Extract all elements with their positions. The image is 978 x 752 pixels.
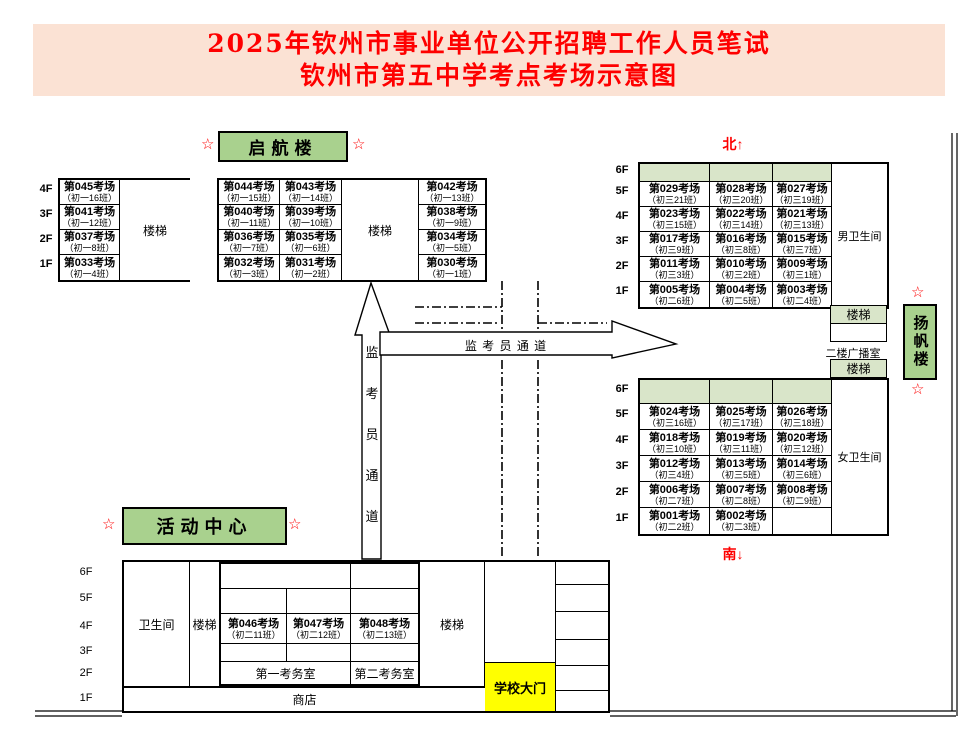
room-cell: 第046考场（初二11班） (221, 614, 287, 644)
room-number: 第007考场 (715, 484, 766, 496)
room-number: 第027考场 (776, 183, 827, 195)
stairs-cell: 楼梯 (120, 180, 190, 280)
room-cell: 第024考场（初三16班） (640, 404, 710, 430)
room-class: （初二7班） (649, 496, 699, 506)
stairs-cell: 楼梯 (190, 562, 219, 686)
room-class: （初三2班） (716, 270, 766, 280)
room-number: 第045考场 (64, 181, 115, 193)
room-class: （初一2班） (285, 269, 335, 279)
room-cell: 第027考场（初三19班） (773, 182, 832, 207)
room-class: （初三9班） (649, 245, 699, 255)
room-cell: 第006考场（初二7班） (640, 482, 710, 508)
empty-cell (351, 644, 418, 662)
room-number: 第030考场 (426, 257, 477, 269)
restroom-cell: 男卫生间 (832, 164, 887, 307)
activity-middle-block: 第046考场（初二11班）第047考场（初二12班）第048考场（初二13班）第… (219, 562, 420, 686)
floor-label: 1F (74, 692, 98, 704)
room-number: 第026考场 (776, 406, 827, 418)
yangfan-building-label: 扬帆楼 (903, 304, 937, 380)
room-cell: 第037考场（初一8班） (60, 230, 120, 255)
room-class: （初二5班） (716, 296, 766, 306)
room-number: 第024考场 (649, 406, 700, 418)
room-class: （初二2班） (649, 522, 699, 532)
room-cell: 第001考场（初二2班） (640, 508, 710, 534)
room-class: （初三18班） (774, 418, 829, 428)
room-cell: 第026考场（初三18班） (773, 404, 832, 430)
room-number: 第034考场 (426, 231, 477, 243)
road-dashdot (415, 281, 607, 558)
room-class: （初二8班） (716, 496, 766, 506)
room-number: 第001考场 (649, 510, 700, 522)
room-number: 第032考场 (223, 257, 274, 269)
star-icon: ☆ (352, 137, 365, 152)
empty-cell (351, 589, 418, 614)
room-cell: 第034考场（初一5班） (419, 230, 485, 255)
room-class: （初三15班） (647, 220, 702, 230)
room-class: （初一6班） (285, 243, 335, 253)
passage-char: 员 (362, 414, 382, 455)
room-cell: 第011考场（初三3班） (640, 257, 710, 282)
empty-cell (710, 164, 773, 182)
passage-char: 监 (362, 332, 382, 373)
room-class: （初二4班） (777, 296, 827, 306)
room-class: （初一3班） (224, 269, 274, 279)
empty-cell (556, 562, 608, 585)
room-number: 第029考场 (649, 183, 700, 195)
room-cell: 第018考场（初三10班） (640, 430, 710, 456)
room-cell: 第004考场（初二5班） (710, 282, 773, 307)
room-class: （初三11班） (714, 444, 768, 454)
room-cell: 第033考场（初一4班） (60, 255, 120, 280)
room-number: 第021考场 (776, 208, 827, 220)
floor-label: 3F (610, 460, 634, 472)
floor-label: 2F (36, 233, 56, 245)
shop-cell: 商店 (124, 686, 485, 711)
room-number: 第044考场 (223, 181, 274, 193)
room-number: 第018考场 (649, 432, 700, 444)
room-cell: 第022考场（初三14班） (710, 207, 773, 232)
floor-label: 3F (74, 645, 98, 657)
floor-label: 1F (610, 285, 634, 297)
room-number: 第039考场 (285, 206, 336, 218)
room-cell: 第040考场（初一11班） (219, 205, 280, 230)
star-icon: ☆ (911, 382, 924, 397)
room-number: 第048考场 (359, 618, 410, 630)
room-class: （初一8班） (64, 243, 114, 253)
stairs-cell: 楼梯 (342, 180, 419, 280)
room-class: （初三17班） (713, 418, 768, 428)
qihang-middle-block: 第044考场（初一15班）第040考场（初一11班）第036考场（初一7班）第0… (217, 178, 487, 282)
room-class: （初三19班） (774, 195, 829, 205)
room-cell: 第008考场（初二9班） (773, 482, 832, 508)
floor-label: 5F (610, 185, 634, 197)
room-class: （初三5班） (716, 470, 766, 480)
exam-office-1-cell: 第一考务室 (221, 662, 351, 684)
room-cell: 第015考场（初三7班） (773, 232, 832, 257)
room-class: （初一13班） (424, 193, 479, 203)
floor-label: 4F (610, 434, 634, 446)
room-cell: 第036考场（初一7班） (219, 230, 280, 255)
room-class: （初三4班） (649, 470, 699, 480)
floor-label: 6F (610, 383, 634, 395)
room-number: 第041考场 (64, 206, 115, 218)
room-cell: 第003考场（初二4班） (773, 282, 832, 307)
qihang-left-block: 第045考场（初一16班）第041考场（初一12班）第037考场（初一8班）第0… (58, 178, 190, 282)
room-number: 第013考场 (715, 458, 766, 470)
room-cell: 第012考场（初三4班） (640, 456, 710, 482)
room-class: （初一7班） (224, 243, 274, 253)
floor-label: 3F (36, 208, 56, 220)
page-title: 2025年钦州市事业单位公开招聘工作人员笔试 钦州市第五中学考点考场示意图 (33, 24, 945, 96)
yangfan-north-table: 第029考场（初三21班）第028考场（初三20班）第027考场（初三19班）第… (638, 162, 889, 309)
room-class: （初一1班） (427, 269, 477, 279)
room-cell: 第032考场（初一3班） (219, 255, 280, 280)
room-cell: 第043考场（初一14班） (280, 180, 342, 205)
empty-cell (287, 589, 351, 614)
room-cell: 第035考场（初一6班） (280, 230, 342, 255)
room-number: 第003考场 (776, 284, 827, 296)
room-cell: 第031考场（初一2班） (280, 255, 342, 280)
empty-cell (773, 164, 832, 182)
room-number: 第022考场 (715, 208, 766, 220)
star-icon: ☆ (201, 137, 214, 152)
room-number: 第019考场 (715, 432, 766, 444)
room-cell: 第002考场（初二3班） (710, 508, 773, 534)
empty-cell (221, 644, 287, 662)
stairs-cell: 楼梯 (830, 359, 887, 378)
stairs-cell: 楼梯 (830, 305, 887, 324)
room-number: 第016考场 (715, 233, 766, 245)
room-number: 第020考场 (776, 432, 827, 444)
passage-char: 道 (362, 496, 382, 537)
empty-cell (556, 585, 608, 612)
empty-cell (830, 323, 887, 342)
room-cell: 第047考场（初二12班） (287, 614, 351, 644)
room-class: （初三16班） (647, 418, 702, 428)
room-class: （初三7班） (777, 245, 827, 255)
restroom-cell: 女卫生间 (832, 380, 887, 534)
room-number: 第023考场 (649, 208, 700, 220)
floor-label: 1F (610, 512, 634, 524)
compass-north: 北↑ (698, 134, 768, 154)
restroom-cell: 卫生间 (124, 562, 190, 686)
floor-label: 4F (36, 183, 56, 195)
yangfan-building-name: 扬帆楼 (910, 315, 931, 369)
floor-label: 2F (610, 486, 634, 498)
activity-center-building: 卫生间 楼梯 第046考场（初二11班）第047考场（初二12班）第048考场（… (122, 560, 610, 713)
room-cell: 第016考场（初三8班） (710, 232, 773, 257)
floor-label: 1F (36, 258, 56, 270)
activity-center-label: 活动中心 (122, 507, 287, 545)
room-number: 第015考场 (776, 233, 827, 245)
activity-right-column (556, 562, 608, 711)
empty-cell (221, 589, 287, 614)
floor-label: 5F (74, 592, 98, 604)
room-number: 第009考场 (776, 258, 827, 270)
title-line-2: 钦州市第五中学考点考场示意图 (33, 60, 945, 92)
yangfan-south-table: 第024考场（初三16班）第025考场（初三17班）第026考场（初三18班）第… (638, 378, 889, 536)
room-cell: 第030考场（初一1班） (419, 255, 485, 280)
room-cell: 第005考场（初二6班） (640, 282, 710, 307)
room-number: 第046考场 (228, 618, 279, 630)
room-cell: 第020考场（初三12班） (773, 430, 832, 456)
floor-label: 3F (610, 235, 634, 247)
empty-cell (556, 640, 608, 666)
room-number: 第011考场 (649, 258, 700, 270)
room-number: 第033考场 (64, 257, 115, 269)
room-class: （初三8班） (716, 245, 766, 255)
room-cell: 第023考场（初三15班） (640, 207, 710, 232)
room-class: （初三6班） (777, 470, 827, 480)
room-number: 第038考场 (426, 206, 477, 218)
room-class: （初一10班） (283, 218, 338, 228)
empty-cell (773, 508, 832, 534)
passage-horizontal-text: 监 考 员 通 道 (436, 337, 576, 354)
room-class: （初一5班） (427, 243, 477, 253)
stairs-cell: 楼梯 (420, 562, 485, 686)
room-number: 第006考场 (649, 484, 700, 496)
room-cell: 第045考场（初一16班） (60, 180, 120, 205)
room-number: 第014考场 (776, 458, 827, 470)
title-line-1: 2025年钦州市事业单位公开招聘工作人员笔试 (33, 28, 945, 60)
room-class: （初三10班） (647, 444, 702, 454)
room-class: （初二11班） (226, 630, 280, 640)
floor-label: 6F (610, 164, 634, 176)
room-class: （初二12班） (291, 630, 346, 640)
room-cell: 第041考场（初一12班） (60, 205, 120, 230)
room-class: （初三13班） (774, 220, 829, 230)
room-class: （初三3班） (649, 270, 699, 280)
room-class: （初一4班） (64, 269, 114, 279)
room-cell: 第007考场（初二8班） (710, 482, 773, 508)
star-icon: ☆ (102, 517, 115, 532)
room-class: （初二6班） (649, 296, 699, 306)
passage-char: 通 (362, 455, 382, 496)
empty-cell (556, 666, 608, 691)
room-number: 第010考场 (715, 258, 766, 270)
gate-column-empty-cell (485, 562, 556, 662)
star-icon: ☆ (911, 285, 924, 300)
room-cell: 第025考场（初三17班） (710, 404, 773, 430)
room-number: 第040考场 (223, 206, 274, 218)
empty-cell (556, 691, 608, 716)
floor-label: 2F (610, 260, 634, 272)
room-number: 第025考场 (715, 406, 766, 418)
empty-cell (640, 164, 710, 182)
room-number: 第035考场 (285, 231, 336, 243)
star-icon: ☆ (288, 517, 301, 532)
passage-vertical-text: 监考员通道 (362, 332, 382, 537)
room-number: 第042考场 (426, 181, 477, 193)
room-number: 第028考场 (715, 183, 766, 195)
floor-label: 4F (74, 620, 98, 632)
room-class: （初三14班） (713, 220, 768, 230)
room-cell: 第038考场（初一9班） (419, 205, 485, 230)
room-number: 第047考场 (293, 618, 344, 630)
room-cell: 第042考场（初一13班） (419, 180, 485, 205)
floor-label: 2F (74, 667, 98, 679)
exam-site-map: { "title": { "line1": "2025年钦州市事业单位公开招聘工… (0, 0, 978, 752)
room-number: 第036考场 (223, 231, 274, 243)
empty-cell (773, 380, 832, 404)
room-class: （初一11班） (222, 218, 276, 228)
school-gate-cell: 学校大门 (485, 662, 556, 711)
room-class: （初三20班） (713, 195, 768, 205)
room-number: 第017考场 (649, 233, 700, 245)
room-class: （初一14班） (283, 193, 338, 203)
room-cell: 第014考场（初三6班） (773, 456, 832, 482)
room-cell: 第048考场（初二13班） (351, 614, 418, 644)
room-class: （初二3班） (716, 522, 766, 532)
room-number: 第037考场 (64, 231, 115, 243)
room-cell: 第009考场（初三1班） (773, 257, 832, 282)
room-number: 第005考场 (649, 284, 700, 296)
qihang-building-label: 启航楼 (218, 131, 348, 162)
room-class: （初三1班） (777, 270, 827, 280)
room-cell: 第017考场（初三9班） (640, 232, 710, 257)
room-cell: 第013考场（初三5班） (710, 456, 773, 482)
empty-cell (221, 564, 351, 589)
floor-label: 5F (610, 408, 634, 420)
room-number: 第004考场 (715, 284, 766, 296)
room-class: （初一9班） (427, 218, 477, 228)
room-cell: 第039考场（初一10班） (280, 205, 342, 230)
empty-cell (710, 380, 773, 404)
room-cell: 第019考场（初三11班） (710, 430, 773, 456)
room-cell: 第029考场（初三21班） (640, 182, 710, 207)
room-number: 第008考场 (776, 484, 827, 496)
empty-cell (351, 564, 418, 589)
room-class: （初一15班） (221, 193, 276, 203)
room-number: 第002考场 (715, 510, 766, 522)
empty-cell (640, 380, 710, 404)
room-class: （初一16班） (62, 193, 117, 203)
room-class: （初三21班） (647, 195, 702, 205)
floor-label: 6F (74, 566, 98, 578)
room-cell: 第044考场（初一15班） (219, 180, 280, 205)
room-class: （初三12班） (774, 444, 829, 454)
room-cell: 第021考场（初三13班） (773, 207, 832, 232)
room-number: 第031考场 (285, 257, 336, 269)
empty-cell (556, 612, 608, 640)
room-class: （初二9班） (777, 496, 827, 506)
empty-cell (287, 644, 351, 662)
room-number: 第043考场 (285, 181, 336, 193)
compass-south: 南↓ (698, 544, 768, 564)
room-class: （初二13班） (357, 630, 412, 640)
room-class: （初一12班） (62, 218, 117, 228)
floor-label: 4F (610, 210, 634, 222)
room-number: 第012考场 (649, 458, 700, 470)
passage-char: 考 (362, 373, 382, 414)
room-cell: 第028考场（初三20班） (710, 182, 773, 207)
exam-office-2-cell: 第二考务室 (351, 662, 418, 684)
room-cell: 第010考场（初三2班） (710, 257, 773, 282)
